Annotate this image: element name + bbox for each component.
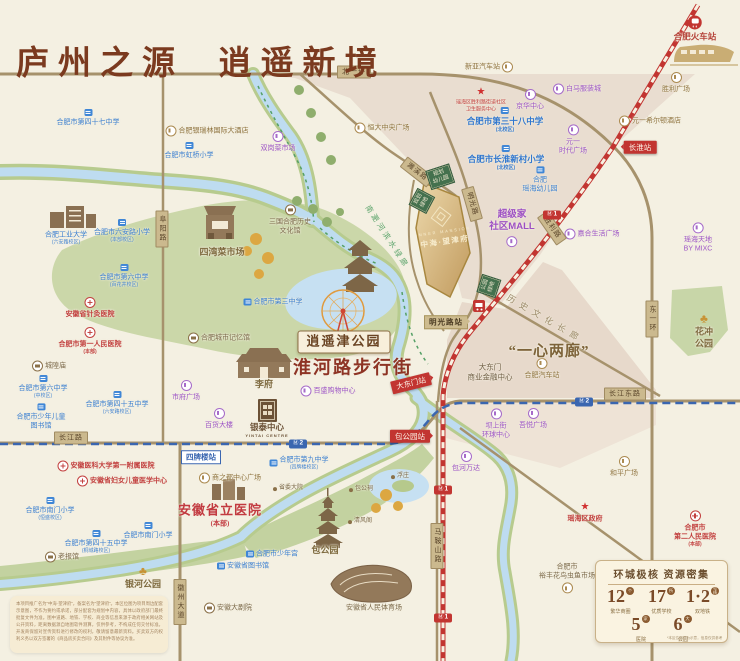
school-icon [185,142,193,149]
poi-label: 元一时代广场 [559,137,587,155]
supermall: 超级家社区MALL [489,209,534,247]
school-45-tongcheng: 合肥市第四十五中学(桐城路校区) [65,530,128,554]
school-icon [120,264,128,271]
poi-label: 胜利广场 [662,85,690,94]
poi-label: 合肥市南门小学(恒盛校区) [26,506,75,521]
dot-icon [391,475,395,479]
purplec-icon [214,408,225,419]
treeg-icon: ♣ [700,312,708,324]
yuanyi-times: 元一时代广场 [559,124,587,155]
purplec-icon [301,386,312,397]
poi-label: 双岗菜市场 [261,144,296,153]
fuzhuang: 浮庄 [391,473,409,481]
poi-label: 超级家社区MALL [489,209,534,234]
brownc-icon [32,361,43,372]
poi-label: 城隍庙 [45,361,66,370]
poi-label: 和平广场 [610,469,638,478]
school-nanmen-2: 合肥市南门小学 [124,522,173,540]
school-icon [536,166,544,173]
hospital-first-people: 合肥市第一人民医院(本部) [59,327,122,355]
planning-green-box-2: 公园绿地 [476,274,501,298]
youth-palace: 合肥市少年宫 [246,549,298,558]
poi-label: 恒大中央广场 [368,123,410,132]
poi-label: 逍遥津公园 [306,334,381,351]
one-heart-two-corridors: “一心两廊” [508,342,589,362]
provincial-stadium: 安徽省人民体育场 [346,603,402,612]
poi-label: 花冲公园 [695,326,713,349]
riverside-greenway: 南淝河滨水绿廊 [363,204,411,271]
school-no6-mid: 合肥市第六中学(中校区) [19,375,68,399]
poi-label: 清风阁 [354,518,372,526]
treeg-icon: ♣ [139,565,147,577]
poi-label: 合肥市少年儿童图书馆 [17,412,66,430]
poi-label: 百货大楼 [205,421,233,430]
shifu-square: 市府广场 [172,380,200,402]
school-luanlu-primary: 合肥市六安路小学(本部校区) [94,219,150,243]
purplec-icon [273,131,284,142]
poi-label: 合肥市少年宫 [256,549,298,558]
project-logo-icon [431,206,452,227]
stat-医院: 5家医院 [621,615,661,643]
yufeng-market: 合肥市裕丰花鸟虫鱼市场 [539,562,595,593]
baogong-shrine: 包公祠 [349,486,373,494]
poi-label: 合肥市第三中学 [254,297,303,306]
poi-label: 合肥市第三十八中学(北校区) [467,116,544,133]
hospital-acupuncture: 安徽省针灸医院 [66,297,115,319]
yaohai-tiandi: 瑶海天地BY MIXC [684,222,713,253]
metro-line-1-badge: 1 [543,211,561,220]
poi-label: 嘉合生活广场 [578,229,620,238]
poi-label: 合肥银瑞林国际大酒店 [179,126,249,135]
location-map-poster: 合肥市第四十七中学合肥银瑞林国际大酒店合肥市虹桥小学合肥工业大学(六安路校区)合… [0,0,740,661]
lifu: 李府 [255,379,273,391]
road-label-长江路: 长江路 [54,431,88,444]
poi-label: 包公祠 [355,486,373,494]
baihuo-building: 百货大楼 [205,408,233,430]
station-pointer [618,144,624,150]
station-mingguanglu: 明光路站 [424,315,468,329]
shengwei-dayuan: 省委大院 [273,485,303,493]
goldc-icon [355,123,366,134]
stat-双地铁: 1·2号线双地铁 [683,587,722,615]
purplec-icon [553,84,564,95]
poi-label: 元一希尔顿酒店 [632,116,681,125]
jiahe-plaza: 嘉合生活广场 [565,229,620,240]
baisheng-mall: 百盛购物中心 [301,386,356,397]
cross-icon [58,461,69,472]
poi-label: 合肥瑶海幼儿园 [523,175,558,193]
baohe-wanda: 包河万达 [452,451,480,473]
poi-label: 合肥市裕丰花鸟虫鱼市场 [539,562,595,580]
school-icon [84,109,92,116]
hilton-hotel: 元一希尔顿酒店 [619,116,681,127]
poi-label: 三国合肥历史文化馆 [269,217,311,235]
school-icon [92,530,100,537]
hospital-anyi-first: 安徽医科大学第一附属医院 [58,461,155,472]
xinya-bus-station: 新亚汽车站 [465,62,513,73]
poi-label: 合肥工业大学(六安路校区) [45,230,87,245]
chenghuang-temple: 城隍庙 [32,361,66,372]
dot-icon [349,488,353,492]
poi-label: 安徽医科大学第一附属医院 [71,461,155,470]
goldc-icon [502,62,513,73]
poi-label: 合肥市第六中学(百花井校区) [100,273,149,288]
school-no6-baihuajing: 合肥市第六中学(百花井校区) [100,264,149,288]
metro-line-2-badge: 2 [575,398,593,407]
cross-icon [85,297,96,308]
school-icon [502,145,510,152]
school-icon [46,497,54,504]
goldc-icon [619,456,630,467]
station-sipailou: 四牌楼站 [181,450,221,464]
purplec-icon [693,222,704,233]
anhui-grand-theatre: 安徽大剧院 [204,603,252,614]
purplec-icon [528,408,539,419]
disclaimer-text: 本项目推广名为“中海·望津府”，备案名为“望津府”。本区位图为项目周边配套示意图… [16,601,163,643]
shuanggang-market: 双岗菜市场 [261,131,296,153]
cross-icon [690,510,701,521]
school-icon [118,219,126,226]
laobaoguan: 老报馆 [45,552,79,563]
children-library: 合肥市少年儿童图书馆 [17,403,66,430]
poi-label: 瑶海区胜利路街道社区卫生服务中心 [456,100,506,113]
school-icon [246,551,254,558]
hospital-women-children: 安徽省妇女儿童医学中心 [77,476,167,487]
poi-label: 坝上街环球中心 [482,421,510,439]
poi-label: 安徽省立医院(本部) [178,502,262,527]
poi-label: 合肥城市记忆馆 [201,333,250,342]
stat-优质学校: 17所优质学校 [642,587,681,615]
qingfeng-pavilion: 清风阁 [348,518,372,526]
poi-label: 安徽大剧院 [217,603,252,612]
bashangjie-center: 坝上街环球中心 [482,408,510,439]
train-icon [688,15,702,29]
poi-label: 大东门商业金融中心 [468,362,513,382]
station-pointer [430,433,436,439]
siwan-market: 四湾菜市场 [199,247,244,259]
cross-icon [77,476,88,487]
school-hongqiao: 合肥市虹桥小学 [165,142,214,160]
dadongmen-cbd: 大东门商业金融中心 [468,362,513,382]
school-no9: 合肥市第九中学(四牌楼校区) [270,455,329,470]
huachong-park: ♣花冲公园 [695,312,713,349]
brownc-icon [45,552,56,563]
poi-label: 老报馆 [58,552,79,561]
goldc-icon [199,473,210,484]
goldc-icon [671,72,682,83]
poi-label: 商之都中心广场 [212,473,261,482]
school-no3: 合肥市第三中学 [244,297,303,306]
station-baogongyuan: 包公园站 [390,430,430,443]
poi-label: 合肥市第二人民医院(本部) [674,523,716,547]
stats-footnote: *本区位图仅为示意，信息仅供参考 [667,635,722,640]
goldc-icon [562,583,573,594]
school-nanmen-1: 合肥市南门小学(恒盛校区) [26,497,75,521]
dot-icon [348,520,352,524]
school-45-luanlu: 合肥市第四十五中学(六安路校区) [86,391,149,415]
stats-row-1: 12个繁华商圈17所优质学校1·2号线双地铁 [600,587,723,615]
poi-label: 合肥市南门小学 [124,531,173,540]
brownc-icon [204,603,215,614]
poi-label: 银河公园 [125,579,161,591]
purplec-icon [525,89,536,100]
community-health: ★瑶海区胜利路街道社区卫生服务中心 [456,88,506,113]
metro-line-1-badge: 1 [434,486,452,495]
star-icon: ★ [477,88,486,98]
poi-label: 合肥汽车站 [525,371,560,380]
purplec-icon [491,408,502,419]
yintai-center: 银泰中心YINTAI CENTRE [245,422,288,438]
metro-line-1-badge: 1 [434,614,452,623]
school-icon [113,391,121,398]
page-title: 庐州之源 逍遥新境 [16,36,387,84]
poi-label: 合肥市第九中学(四牌楼校区) [280,455,329,470]
road-label-阜阳路: 阜阳路 [155,211,168,248]
planning-green-box-0: 规划幼儿园 [425,164,455,191]
shengli-square: 胜利广场 [662,72,690,94]
poi-label: 省委大院 [279,485,303,493]
huaihe-road-street: 淮河路步行街 [293,356,413,379]
hospital-provincial: 安徽省立医院(本部) [178,502,262,527]
poi-label: 南淝河滨水绿廊 [363,204,411,271]
school-47-middle: 合肥市第四十七中学 [57,109,120,127]
school-icon [144,522,152,529]
road-label-马鞍山路: 马鞍山路 [430,523,443,569]
poi-label: 安徽省针灸医院 [66,310,115,319]
poi-label: 瑶海区政府 [568,514,603,523]
poi-label: “一心两廊” [508,342,589,362]
stats-panel: 环城极核 资源密集 12个繁华商圈17所优质学校1·2号线双地铁 5家医院6大公… [595,560,728,643]
history-culture-corridor: 历史文化长廊 [505,292,586,345]
poi-label: 历史文化长廊 [505,292,586,345]
dot-icon [273,487,277,491]
poi-label: 合肥市虹桥小学 [165,151,214,160]
yaohai-kindergarten: 合肥瑶海幼儿园 [523,166,558,193]
purplec-icon [461,451,472,462]
purplec-icon [506,236,517,247]
poi-label: 包河万达 [452,464,480,473]
cross-icon [85,327,96,338]
yinhe-park: ♣银河公园 [125,565,161,591]
poi-label: 李府 [255,379,273,391]
metro-line-2-badge: 2 [289,440,307,449]
heping-square: 和平广场 [610,456,638,478]
poi-label: 四湾菜市场 [199,247,244,259]
disclaimer-box: 本项目推广名为“中海·望津府”，备案名为“望津府”。本区位图为项目周边配套示意图… [10,596,168,653]
shangzhidu-center: 商之都中心广场 [199,473,261,484]
poi-label: 合肥市第六中学(中校区) [19,384,68,399]
poi-label: 安徽省妇女儿童医学中心 [90,476,167,485]
hfut-university: 合肥工业大学(六安路校区) [45,230,87,245]
road-label-东一环: 东一环 [645,301,658,338]
poi-label: 安徽省人民体育场 [346,603,402,612]
poi-label: 安徽省图书馆 [227,561,269,570]
school-icon [270,460,278,467]
purplec-icon [181,380,192,391]
station-pointer [430,373,437,380]
poi-label: 淮河路步行街 [293,356,413,379]
poi-label: 瑶海天地BY MIXC [684,235,713,253]
goldc-icon [619,116,630,127]
school-icon [39,375,47,382]
poi-label: 银泰中心YINTAI CENTRE [245,422,288,438]
poi-label: 白马服装城 [566,84,601,93]
hotel-yinruilin: 合肥银瑞林国际大酒店 [166,126,249,137]
anhui-library: 安徽省图书馆 [217,561,269,570]
xiaoyaojin-park-label: 逍遥津公园 [297,331,390,354]
purplec-icon [568,124,579,135]
wuyue-plaza: 吾悦广场 [519,408,547,430]
poi-label: 市府广场 [172,393,200,402]
stats-title: 环城极核 资源密集 [600,566,723,581]
brownc-icon [188,333,199,344]
city-memory-hall: 合肥城市记忆馆 [188,333,250,344]
school-icon [244,299,252,306]
poi-label: 合肥市第四十七中学 [57,118,120,127]
poi-label: 合肥市第四十五中学(六安路校区) [86,400,149,415]
goldc-icon [166,126,177,137]
yaohai-gov: ★瑶海区政府 [568,502,603,523]
poi-label: 合肥火车站 [674,31,717,42]
road-label-长江东路: 长江东路 [604,387,646,400]
poi-label: 吾悦广场 [519,421,547,430]
poi-label: 包公园 [311,545,338,557]
poi-label: 合肥市六安路小学(本部校区) [94,228,150,243]
hefei-railway-station: 合肥火车站 [674,15,717,42]
station-changhuai: 长淮站 [624,141,657,154]
hospital-second-people: 合肥市第二人民医院(本部) [674,510,716,547]
stat-繁华商圈: 12个繁华商圈 [601,587,640,615]
poi-label: 浮庄 [397,473,409,481]
three-kingdoms-hall: 三国合肥历史文化馆 [269,204,311,235]
baogong-park: 包公园 [311,545,338,557]
road-label-徽州大道: 徽州大道 [173,579,186,625]
stats-divider [608,584,715,585]
baima-clothing: 白马服装城 [553,84,601,95]
station-pointer [467,319,473,325]
project-label: INNER MANSION 中海·望津府 [413,205,473,250]
school-icon [37,403,45,410]
poi-label: 合肥市第一人民医院(本部) [59,340,122,355]
poi-label: 新亚汽车站 [465,62,500,71]
poi-label: 百盛购物中心 [314,386,356,395]
brownc-icon [285,204,296,215]
hengda-plaza: 恒大中央广场 [355,123,410,134]
star-icon: ★ [581,502,590,512]
school-icon [217,563,225,570]
